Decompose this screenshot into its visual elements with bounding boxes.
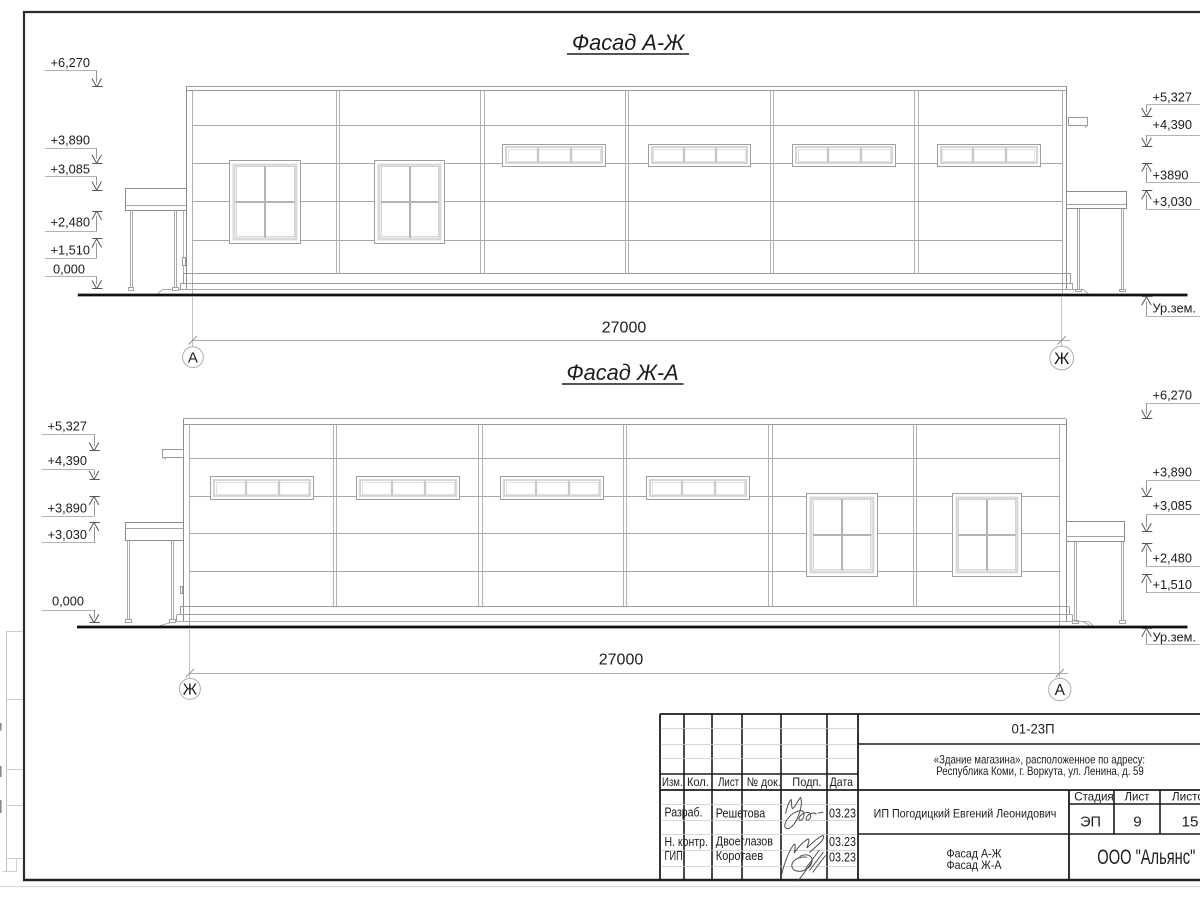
svg-text:9: 9 [1133,813,1141,830]
svg-text:+3,085: +3,085 [51,161,91,176]
svg-text:15: 15 [1182,813,1199,830]
svg-text:Ж: Ж [1054,350,1070,368]
svg-text:ЭП: ЭП [1080,814,1101,830]
svg-text:+2,480: +2,480 [51,215,91,230]
svg-text:ООО "Альянс": ООО "Альянс" [1097,846,1195,869]
svg-text:01-23П: 01-23П [1012,722,1055,738]
svg-text:+5,327: +5,327 [48,419,88,434]
svg-text:03.23: 03.23 [829,851,856,865]
svg-text:Разраб.: Разраб. [665,806,703,820]
svg-text:+1,510: +1,510 [51,242,91,257]
svg-text:+4,390: +4,390 [1153,117,1193,132]
svg-text:03.23: 03.23 [829,806,856,820]
svg-text:№ док.: № док. [747,775,781,789]
svg-text:+1,510: +1,510 [1153,577,1193,592]
svg-text:+3,030: +3,030 [48,527,88,542]
svg-text:+3,085: +3,085 [1153,498,1193,513]
svg-text:+4,390: +4,390 [48,453,88,468]
svg-text:Листов: Листов [1172,790,1200,804]
svg-text:+3890: +3890 [1153,168,1189,183]
svg-text:Ур.зем.: Ур.зем. [1153,630,1196,645]
svg-text:0,000: 0,000 [52,594,84,609]
svg-text:03.23: 03.23 [829,835,856,849]
svg-text:27000: 27000 [602,319,647,336]
svg-text:Н. контр.: Н. контр. [665,835,708,849]
svg-text:Ур.зем.: Ур.зем. [1153,301,1196,316]
svg-text:Фасад А-Ж: Фасад А-Ж [572,30,686,55]
svg-text:А: А [1055,682,1066,699]
svg-text:Фасад Ж-А: Фасад Ж-А [947,858,1002,872]
svg-text:Лист: Лист [718,775,739,789]
svg-text:Подп.: Подп. [792,775,821,789]
svg-text:Ж: Ж [183,681,198,698]
svg-text:+6,270: +6,270 [1153,387,1193,402]
svg-text:Решетова: Решетова [716,806,766,820]
svg-text:+3,890: +3,890 [1153,464,1193,479]
svg-text:А: А [188,350,198,367]
svg-text:Фасад Ж-А: Фасад Ж-А [566,360,678,385]
svg-text:Лист: Лист [1125,790,1151,804]
svg-text:Республика Коми, г. Воркута, у: Республика Коми, г. Воркута, ул. Ленина,… [936,764,1144,778]
svg-text:Коротаев: Коротаев [716,849,764,863]
svg-text:0,000: 0,000 [53,261,85,276]
svg-text:Двоеглазов: Двоеглазов [716,835,774,849]
svg-text:+2,480: +2,480 [1153,551,1193,566]
svg-text:+3,890: +3,890 [51,132,91,147]
svg-text:+5,327: +5,327 [1153,89,1193,104]
svg-text:27000: 27000 [599,652,644,669]
svg-text:Изм.: Изм. [662,775,683,789]
svg-text:+3,030: +3,030 [1153,194,1193,209]
svg-text:Стадия: Стадия [1074,790,1113,804]
svg-text:Дата: Дата [830,775,853,789]
svg-text:+6,270: +6,270 [51,55,91,70]
svg-text:ИП Погодицкий Евгений Леонидов: ИП Погодицкий Евгений Леонидович [874,807,1057,821]
svg-text:Кол.: Кол. [687,775,709,789]
svg-text:+3,890: +3,890 [48,500,88,515]
svg-text:ГИП: ГИП [665,849,683,863]
